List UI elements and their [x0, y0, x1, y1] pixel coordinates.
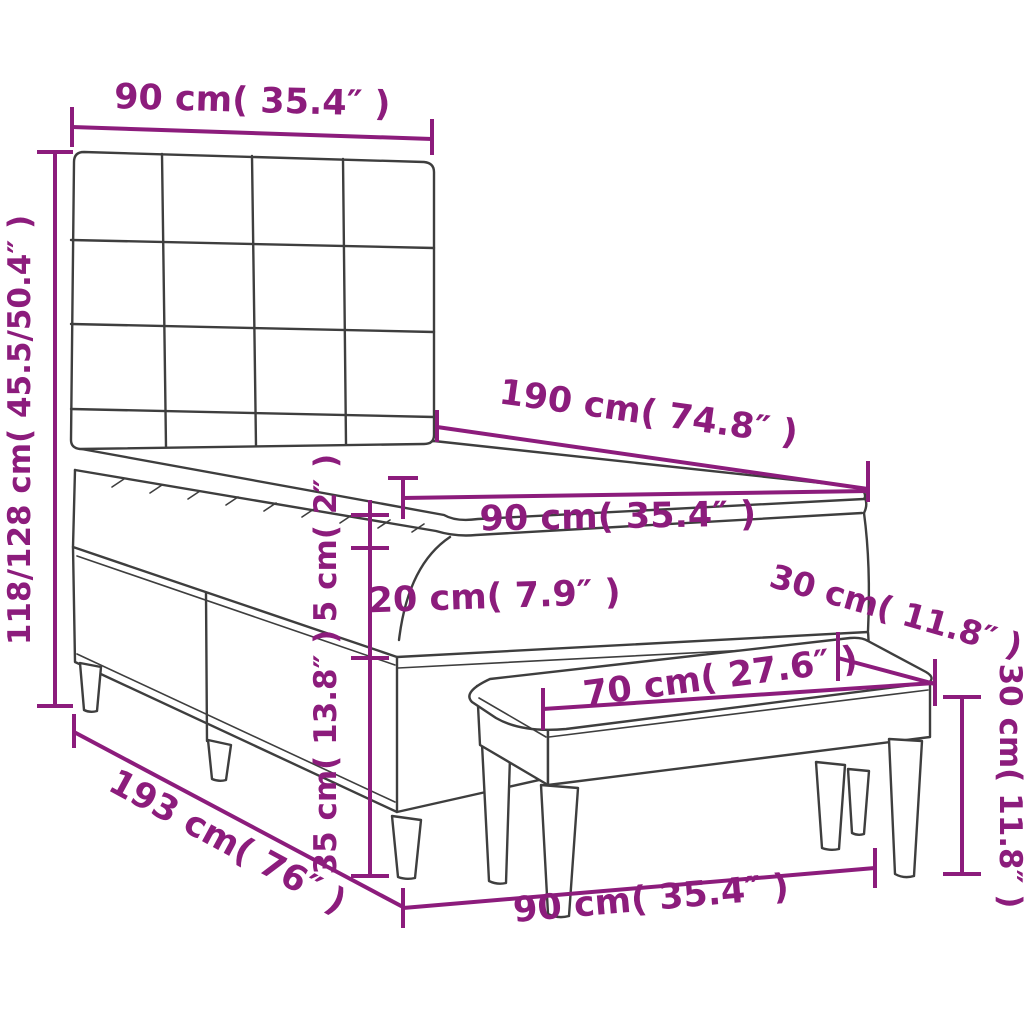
bench-leg-front-right: [889, 739, 922, 877]
dim-bench-height: [943, 697, 981, 874]
label-mattress-width: 90 cm( 35.4″ ): [479, 495, 756, 540]
dim-bed-height: [37, 152, 73, 706]
bed-dimension-diagram: 90 cm( 35.4″ ) 118/128 cm( 45.5/50.4″ ) …: [0, 0, 1024, 1024]
bench-leg-hidden: [848, 769, 869, 835]
label-bed-height: 118/128 cm( 45.5/50.4″ ): [2, 215, 38, 645]
label-topper-height: 5 cm( 2″ ): [308, 454, 344, 622]
label-bench-height: 30 cm( 11.8″ ): [992, 664, 1024, 909]
label-base-height: 35 cm( 13.8″ ): [308, 630, 344, 875]
bench-leg-back-right: [816, 762, 845, 850]
headboard: [71, 152, 434, 449]
label-mattress-height: 20 cm( 7.9″ ): [368, 573, 621, 622]
label-headboard-width: 90 cm( 35.4″ ): [114, 77, 391, 125]
bench-leg-back-left: [482, 744, 510, 884]
diagram-canvas: 90 cm( 35.4″ ) 118/128 cm( 45.5/50.4″ ) …: [0, 0, 1024, 1024]
